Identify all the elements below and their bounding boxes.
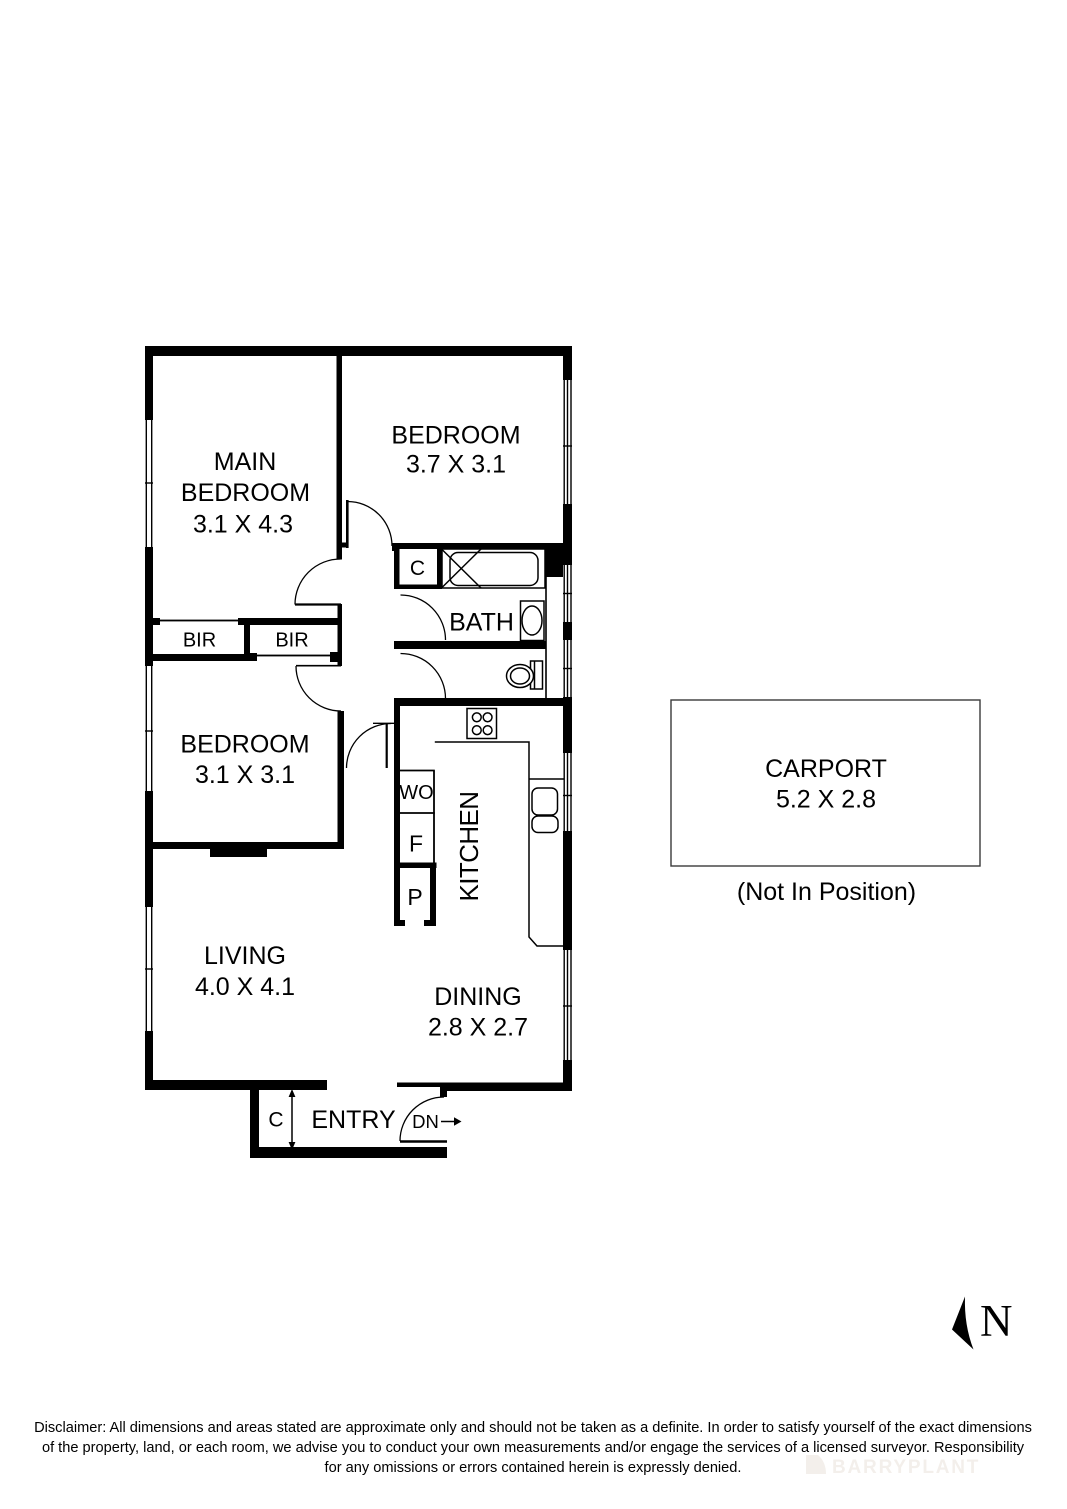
- svg-text:(Not In Position): (Not In Position): [737, 878, 916, 906]
- svg-text:ENTRY: ENTRY: [311, 1106, 396, 1134]
- svg-text:BARRYPLANT: BARRYPLANT: [832, 1457, 980, 1478]
- svg-text:C: C: [410, 557, 425, 580]
- svg-text:C: C: [268, 1109, 283, 1132]
- svg-text:DINING: DINING: [434, 983, 522, 1011]
- svg-text:of the property, land, or each: of the property, land, or each room, we …: [42, 1440, 1025, 1456]
- svg-text:5.2 X 2.8: 5.2 X 2.8: [776, 786, 876, 814]
- svg-text:BEDROOM: BEDROOM: [180, 731, 309, 759]
- svg-text:MAIN: MAIN: [214, 448, 277, 476]
- svg-text:CARPORT: CARPORT: [765, 755, 887, 783]
- svg-text:LIVING: LIVING: [204, 942, 286, 970]
- svg-text:P: P: [407, 884, 422, 910]
- svg-text:BIR: BIR: [275, 630, 308, 652]
- svg-text:BIR: BIR: [183, 630, 216, 652]
- svg-text:F: F: [409, 831, 423, 857]
- svg-text:for any omissions or errors co: for any omissions or errors contained he…: [325, 1460, 742, 1476]
- svg-text:Disclaimer: All dimensions and: Disclaimer: All dimensions and areas sta…: [34, 1420, 1032, 1436]
- svg-text:WO: WO: [399, 782, 433, 804]
- svg-text:3.1 X 4.3: 3.1 X 4.3: [193, 511, 293, 539]
- svg-text:DN: DN: [412, 1111, 439, 1132]
- svg-text:BEDROOM: BEDROOM: [391, 422, 520, 450]
- svg-text:3.7 X 3.1: 3.7 X 3.1: [406, 451, 506, 479]
- svg-text:KITCHEN: KITCHEN: [454, 792, 484, 902]
- svg-text:BATH: BATH: [449, 609, 514, 637]
- svg-text:N: N: [980, 1296, 1013, 1346]
- svg-text:4.0 X 4.1: 4.0 X 4.1: [195, 973, 295, 1001]
- svg-text:3.1 X 3.1: 3.1 X 3.1: [195, 761, 295, 789]
- svg-text:2.8 X 2.7: 2.8 X 2.7: [428, 1014, 528, 1042]
- svg-text:BEDROOM: BEDROOM: [181, 479, 310, 507]
